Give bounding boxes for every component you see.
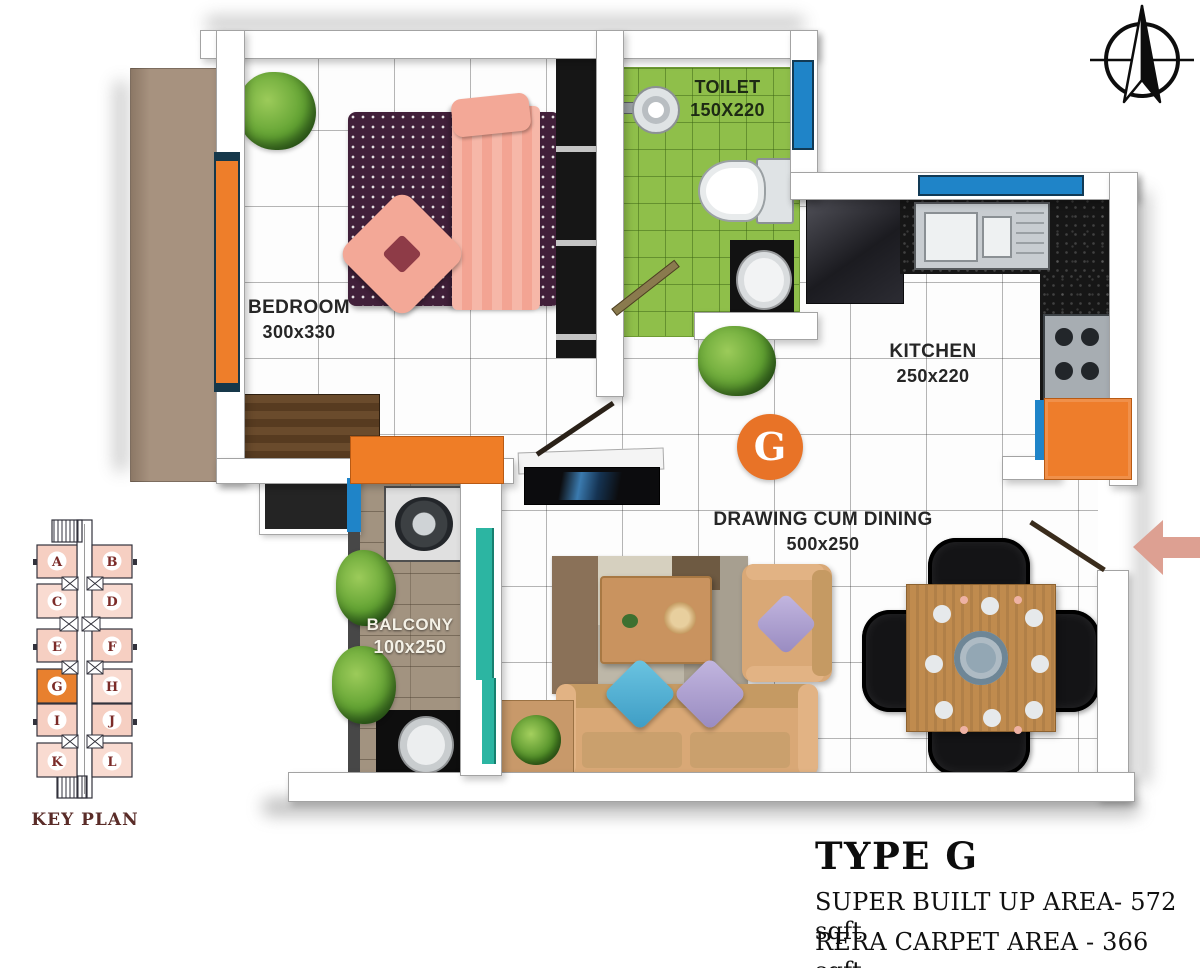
wall: [1097, 570, 1129, 800]
svg-text:I: I: [54, 714, 60, 729]
balcony-rail: [476, 528, 494, 680]
armchair: [742, 564, 832, 682]
side-table: [498, 700, 574, 780]
key-plan-caption: KEY PLAN: [22, 812, 148, 829]
svg-text:L: L: [107, 755, 116, 770]
room-label-bedroom: BEDROOM 300x330: [224, 296, 374, 344]
window: [792, 60, 814, 150]
rera-carpet-area: RERA CARPET AREA - 366 sqft: [815, 928, 1200, 968]
cushion: [755, 593, 817, 655]
window: [918, 175, 1084, 196]
wall-shadow: [114, 80, 128, 472]
bed-headboard: [556, 58, 600, 358]
wall: [200, 30, 818, 59]
tv: [524, 467, 660, 505]
window: [214, 152, 240, 392]
svg-text:F: F: [107, 640, 117, 655]
stairs-icon: [52, 520, 82, 542]
sink-drainboard: [1016, 212, 1044, 258]
balcony-rail: [482, 678, 496, 764]
wall: [288, 772, 1135, 802]
wall: [596, 30, 624, 397]
wash-basin: [736, 250, 792, 310]
fridge: [806, 196, 904, 304]
plant-icon: [238, 72, 316, 150]
bed-pillow: [450, 92, 532, 138]
stove-burners: [1055, 328, 1073, 346]
service-shaft: [1035, 400, 1044, 460]
adjacent-unit-slab: [130, 68, 218, 482]
svg-text:C: C: [52, 595, 62, 610]
toilet-wc: [698, 160, 766, 222]
wall-shadow: [1136, 190, 1150, 785]
svg-text:K: K: [51, 755, 63, 770]
sink-basin: [982, 216, 1012, 258]
svg-text:E: E: [52, 640, 62, 655]
floor-plan-page: BEDROOM 300x330 TOILET 150X220 KITCHEN 2…: [0, 0, 1200, 968]
plant-icon: [511, 715, 561, 765]
room-label-kitchen: KITCHEN 250x220: [868, 340, 998, 388]
dining-table: [906, 584, 1056, 732]
svg-text:B: B: [107, 555, 118, 570]
svg-text:D: D: [106, 595, 117, 610]
wash-basin: [398, 716, 454, 774]
room-label-hall: DRAWING CUM DINING 500x250: [698, 508, 948, 556]
coffee-table: [600, 576, 712, 664]
svg-text:A: A: [51, 555, 63, 570]
type-title: TYPE G: [815, 836, 978, 877]
washing-machine: [384, 486, 464, 562]
room-label-toilet: TOILET 150X220: [660, 76, 795, 123]
wardrobe: [350, 436, 504, 484]
unit-badge: G: [737, 414, 803, 480]
svg-text:H: H: [106, 680, 118, 695]
room-label-balcony: BALCONY 100x250: [358, 614, 462, 659]
svg-text:J: J: [108, 714, 115, 729]
plant-icon: [698, 326, 776, 396]
sofa: [556, 684, 818, 776]
kitchen-cabinet: [1044, 398, 1132, 480]
compass-icon: [1090, 2, 1194, 110]
kitchen-sink: [914, 202, 1050, 270]
stove-icon: [1043, 314, 1111, 402]
svg-text:G: G: [51, 680, 62, 695]
sink-basin: [924, 212, 978, 262]
entry-arrow-icon: [1133, 520, 1200, 576]
key-plan: A B C D E F G H I J K L: [24, 514, 146, 810]
wall-shadow: [205, 16, 805, 31]
stairs-icon: [57, 776, 87, 798]
window: [347, 478, 361, 532]
